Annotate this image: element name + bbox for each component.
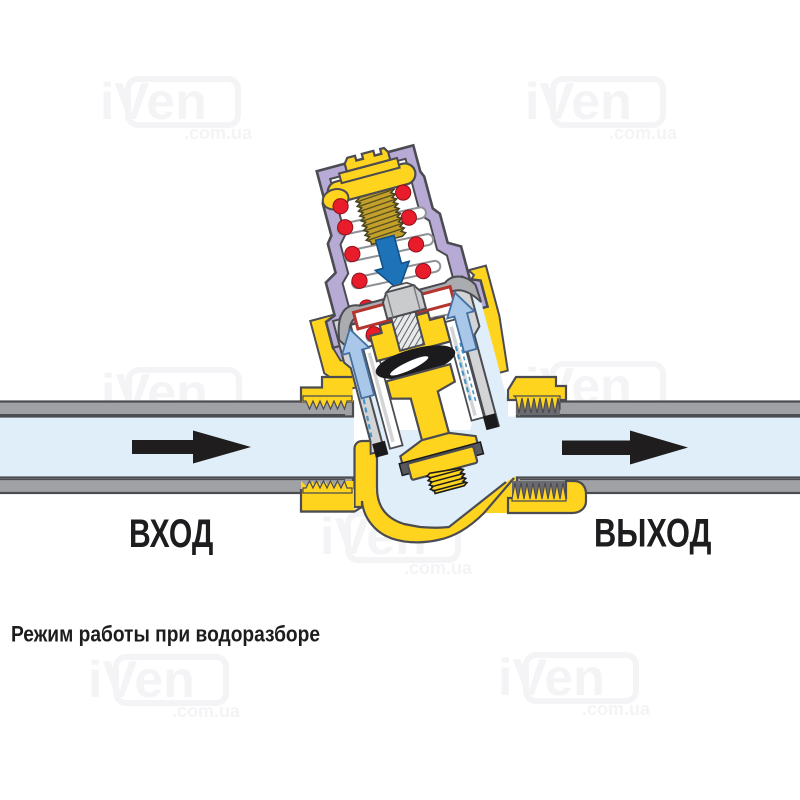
svg-text:.com.ua: .com.ua [184,123,253,143]
svg-text:.com.ua: .com.ua [582,699,651,719]
svg-text:.com.ua: .com.ua [609,123,678,143]
svg-text:ВЫХОД: ВЫХОД [594,511,711,556]
svg-text:Режим работы при водоразборе: Режим работы при водоразборе [11,622,320,647]
svg-text:.com.ua: .com.ua [172,701,241,721]
svg-text:ВХОД: ВХОД [129,511,213,556]
svg-text:.com.ua: .com.ua [404,558,473,578]
